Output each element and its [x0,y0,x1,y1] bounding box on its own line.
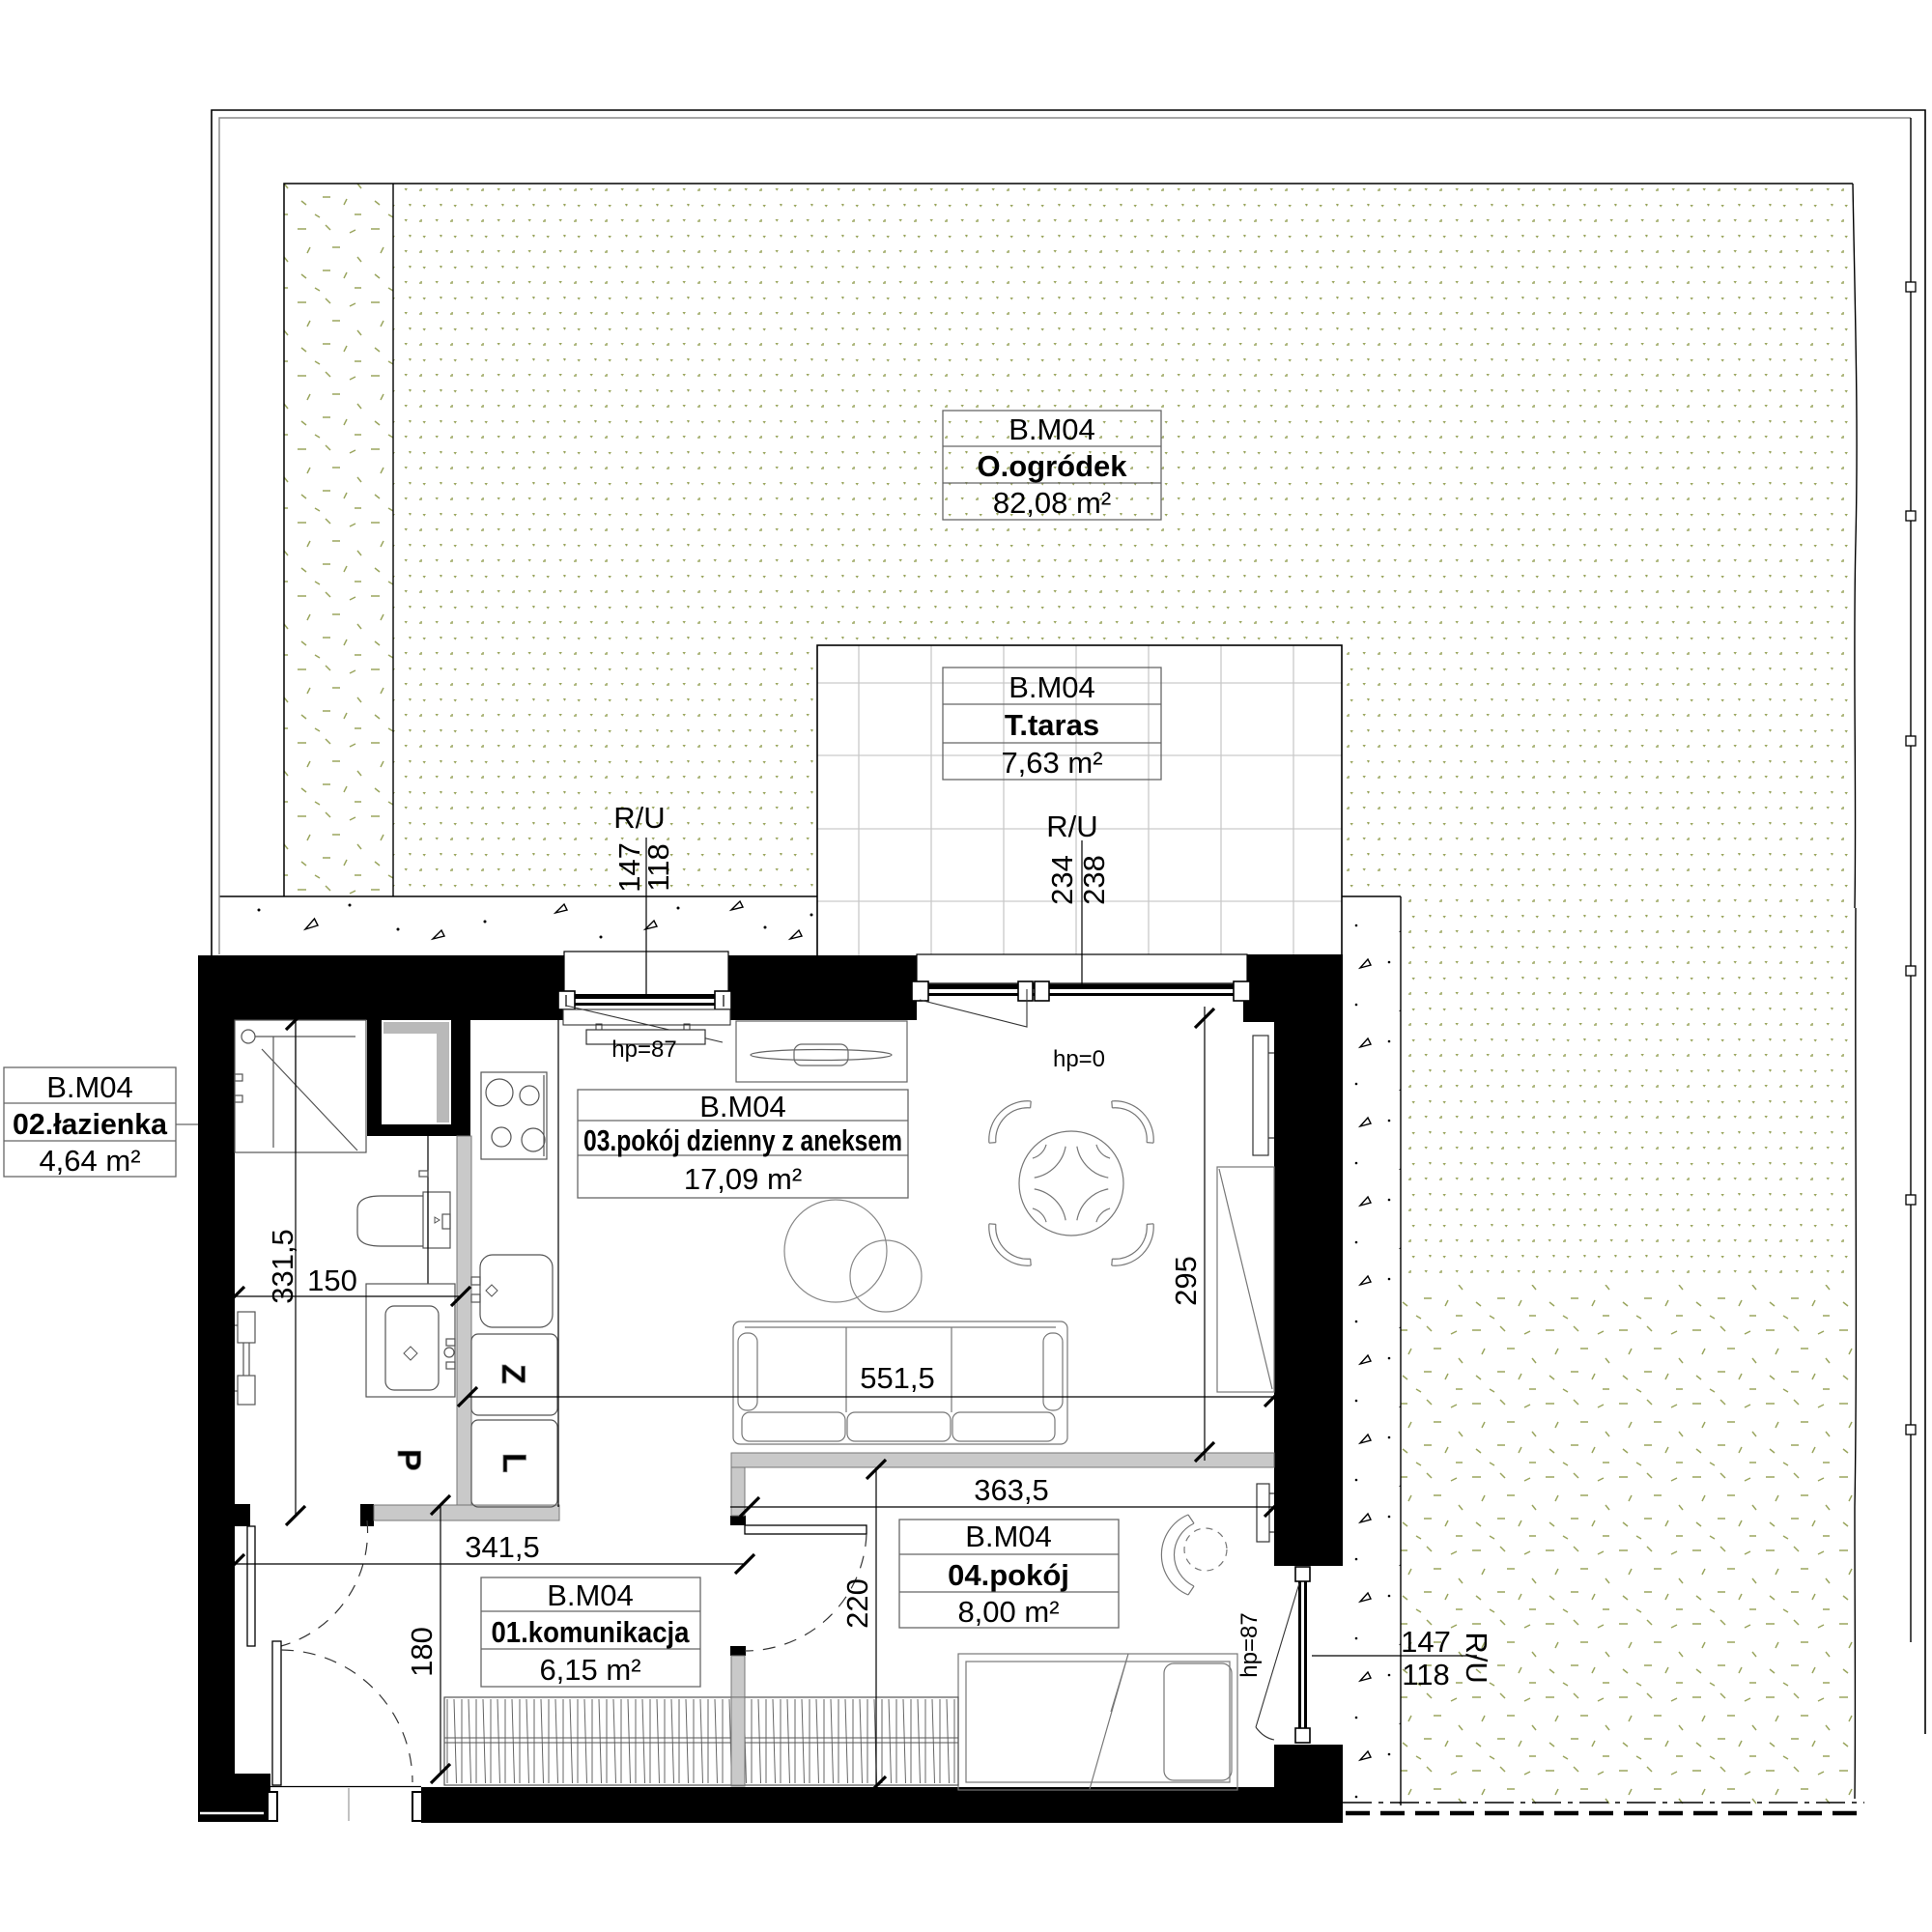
svg-text:02.łazienka: 02.łazienka [13,1107,168,1141]
svg-text:118: 118 [641,843,675,891]
svg-text:O.ogródek: O.ogródek [977,449,1127,483]
svg-text:04.pokój: 04.pokój [948,1558,1069,1592]
svg-text:331,5: 331,5 [266,1229,299,1304]
svg-text:Z: Z [495,1364,531,1384]
svg-text:hp=87: hp=87 [1236,1612,1263,1677]
svg-text:B.M04: B.M04 [1009,412,1095,446]
svg-text:6,15 m²: 6,15 m² [539,1653,640,1687]
svg-text:T.taras: T.taras [1005,708,1099,742]
svg-text:551,5: 551,5 [860,1361,935,1395]
svg-text:B.M04: B.M04 [1009,670,1095,704]
svg-text:B.M04: B.M04 [46,1070,133,1104]
svg-text:B.M04: B.M04 [699,1090,786,1123]
svg-text:01.komunikacja: 01.komunikacja [492,1615,691,1649]
svg-text:R/U: R/U [1046,810,1097,843]
svg-text:147: 147 [1401,1625,1451,1659]
svg-text:03.pokój dzienny z aneksem: 03.pokój dzienny z aneksem [583,1123,902,1157]
svg-text:hp=0: hp=0 [1053,1046,1105,1072]
svg-text:L: L [496,1453,532,1473]
svg-text:P: P [390,1449,427,1471]
svg-text:B.M04: B.M04 [547,1578,634,1612]
svg-text:118: 118 [1402,1658,1449,1691]
svg-text:17,09 m²: 17,09 m² [684,1162,802,1196]
svg-text:R/U: R/U [1460,1632,1493,1683]
svg-text:4,64 m²: 4,64 m² [39,1144,140,1178]
svg-text:82,08 m²: 82,08 m² [993,486,1111,520]
svg-text:8,00 m²: 8,00 m² [957,1595,1059,1629]
svg-text:363,5: 363,5 [974,1473,1049,1507]
svg-text:220: 220 [840,1578,874,1629]
svg-text:234: 234 [1045,855,1079,905]
svg-text:180: 180 [405,1627,439,1677]
svg-text:341,5: 341,5 [465,1530,540,1564]
svg-text:7,63 m²: 7,63 m² [1001,746,1102,780]
svg-text:238: 238 [1077,855,1111,905]
svg-text:150: 150 [307,1264,357,1297]
svg-text:295: 295 [1169,1256,1203,1306]
svg-text:hp=87: hp=87 [611,1037,676,1063]
svg-text:B.M04: B.M04 [965,1520,1052,1553]
svg-text:R/U: R/U [613,801,665,835]
